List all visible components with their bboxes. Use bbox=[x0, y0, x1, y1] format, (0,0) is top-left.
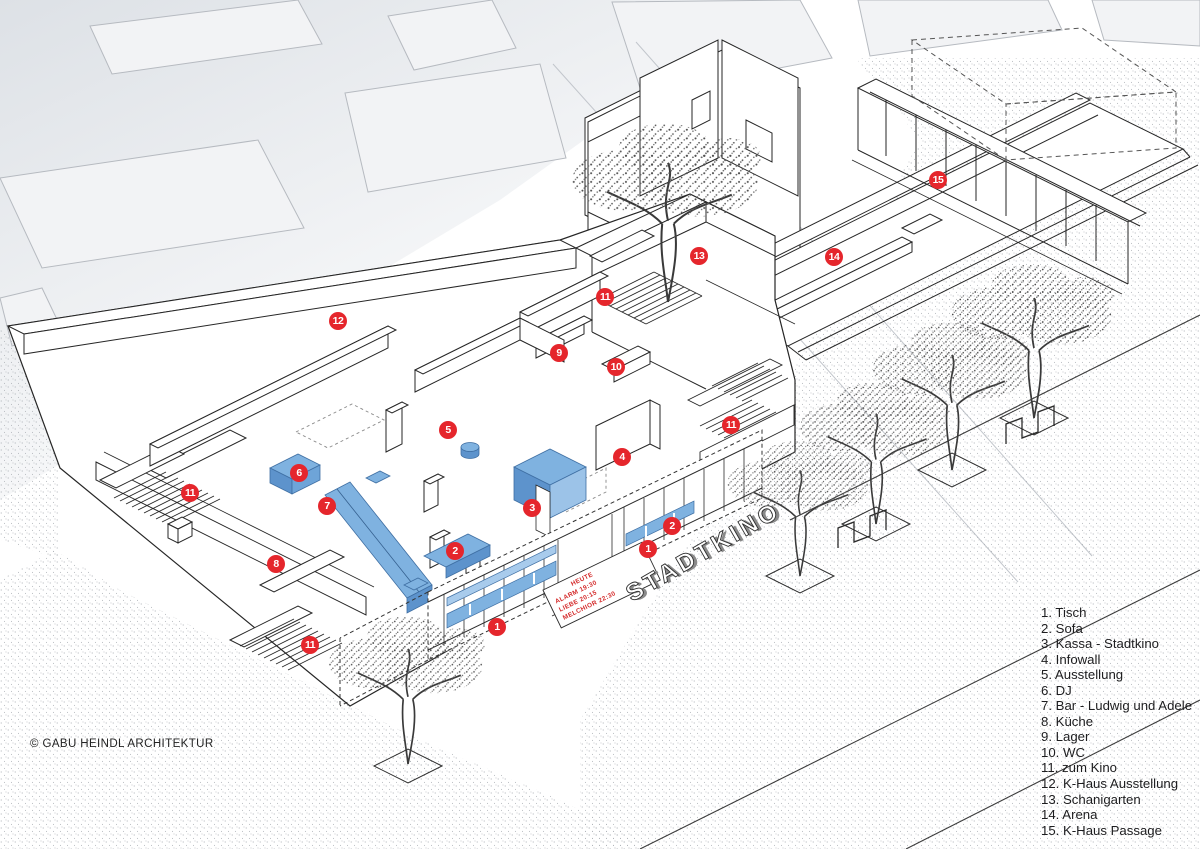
legend-item: 13. Schanigarten bbox=[1041, 792, 1192, 808]
marker-15-k-haus-passage: 15 bbox=[929, 171, 947, 189]
legend-item: 14. Arena bbox=[1041, 807, 1192, 823]
legend-item: 1. Tisch bbox=[1041, 605, 1192, 621]
marker-3-kassa-stadtkino: 3 bbox=[523, 499, 541, 517]
legend-item: 6. DJ bbox=[1041, 683, 1192, 699]
legend-item: 12. K-Haus Ausstellung bbox=[1041, 776, 1192, 792]
legend: 1. Tisch 2. Sofa 3. Kassa - Stadtkino 4.… bbox=[1041, 605, 1192, 838]
marker-11-zum-kino: 11 bbox=[181, 484, 199, 502]
legend-item: 7. Bar - Ludwig und Adele bbox=[1041, 698, 1192, 714]
legend-item: 5. Ausstellung bbox=[1041, 667, 1192, 683]
marker-8-kueche: 8 bbox=[267, 555, 285, 573]
marker-12-k-haus-ausstellung: 12 bbox=[329, 312, 347, 330]
legend-item: 9. Lager bbox=[1041, 729, 1192, 745]
marker-11-zum-kino: 11 bbox=[722, 416, 740, 434]
marker-6-dj: 6 bbox=[290, 464, 308, 482]
legend-list: 1. Tisch 2. Sofa 3. Kassa - Stadtkino 4.… bbox=[1041, 605, 1192, 838]
legend-item: 4. Infowall bbox=[1041, 652, 1192, 668]
legend-item: 15. K-Haus Passage bbox=[1041, 823, 1192, 839]
legend-item: 2. Sofa bbox=[1041, 621, 1192, 637]
marker-1-tisch: 1 bbox=[488, 618, 506, 636]
marker-7-bar-ludwig-und-adele: 7 bbox=[318, 497, 336, 515]
marker-2-sofa: 2 bbox=[663, 517, 681, 535]
marker-1-tisch: 1 bbox=[639, 540, 657, 558]
round-table bbox=[461, 443, 479, 459]
marker-14-arena: 14 bbox=[825, 248, 843, 266]
copyright: © GABU HEINDL ARCHITEKTUR bbox=[30, 738, 214, 750]
marker-5-ausstellung: 5 bbox=[439, 421, 457, 439]
marker-4-infowall: 4 bbox=[613, 448, 631, 466]
legend-item: 11. zum Kino bbox=[1041, 760, 1192, 776]
line-drawing: HEUTE ALARM 19:30 LIEBE 20:15 MELCHIOR 2… bbox=[0, 0, 1200, 849]
legend-item: 10. WC bbox=[1041, 745, 1192, 761]
legend-item: 8. Küche bbox=[1041, 714, 1192, 730]
marker-11-zum-kino: 11 bbox=[301, 636, 319, 654]
marker-2-sofa: 2 bbox=[446, 542, 464, 560]
legend-item: 3. Kassa - Stadtkino bbox=[1041, 636, 1192, 652]
marker-9-lager: 9 bbox=[550, 344, 568, 362]
marker-11-zum-kino: 11 bbox=[596, 288, 614, 306]
marker-13-schanigarten: 13 bbox=[690, 247, 708, 265]
marker-10-wc: 10 bbox=[607, 358, 625, 376]
axonometric-site-plan: HEUTE ALARM 19:30 LIEBE 20:15 MELCHIOR 2… bbox=[0, 0, 1200, 849]
